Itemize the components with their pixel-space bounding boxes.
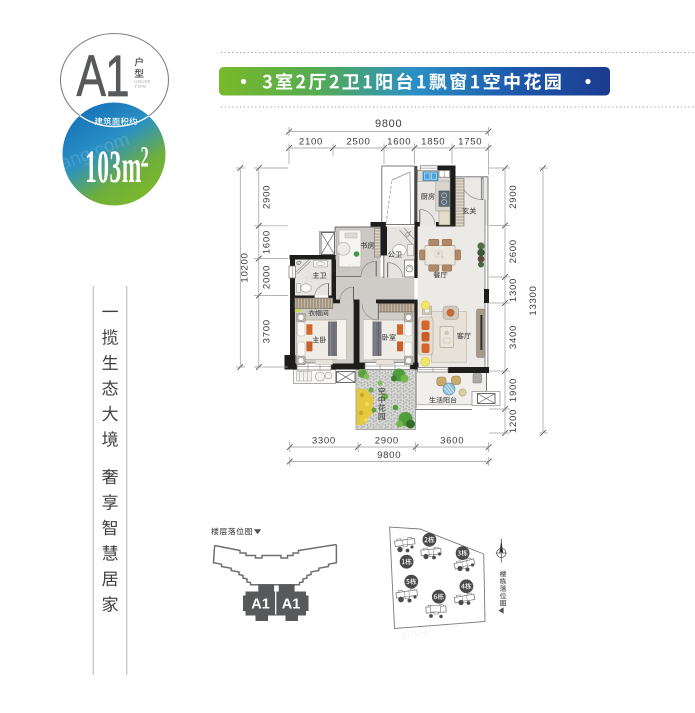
svg-text:13300: 13300 bbox=[528, 285, 539, 315]
svg-text:1300: 1300 bbox=[508, 278, 519, 302]
svg-text:10200: 10200 bbox=[240, 252, 251, 282]
svg-text:103m: 103m bbox=[85, 142, 142, 194]
svg-text:1900: 1900 bbox=[508, 378, 519, 402]
svg-text:2900: 2900 bbox=[508, 185, 519, 209]
svg-text:A1: A1 bbox=[77, 43, 129, 108]
svg-text:2600: 2600 bbox=[508, 239, 519, 263]
svg-text:1600: 1600 bbox=[387, 137, 411, 148]
svg-text:3400: 3400 bbox=[508, 325, 519, 349]
svg-text:2500: 2500 bbox=[346, 137, 370, 148]
svg-text:2900: 2900 bbox=[375, 436, 399, 447]
svg-text:1750: 1750 bbox=[458, 137, 482, 148]
svg-text:1200: 1200 bbox=[508, 409, 519, 433]
svg-text:9800: 9800 bbox=[375, 118, 402, 130]
svg-text:1850: 1850 bbox=[421, 137, 445, 148]
svg-text:TYPE: TYPE bbox=[134, 84, 146, 89]
svg-text:A1: A1 bbox=[282, 597, 301, 613]
svg-text:3700: 3700 bbox=[262, 319, 273, 343]
svg-text:9800: 9800 bbox=[377, 450, 401, 461]
svg-text:2: 2 bbox=[141, 141, 149, 174]
svg-text:1600: 1600 bbox=[262, 230, 273, 254]
svg-text:A1: A1 bbox=[251, 597, 270, 613]
svg-text:2000: 2000 bbox=[262, 265, 273, 289]
svg-text:2100: 2100 bbox=[299, 137, 323, 148]
svg-text:2900: 2900 bbox=[262, 185, 273, 209]
svg-text:3600: 3600 bbox=[440, 436, 464, 447]
svg-text:3300: 3300 bbox=[312, 436, 336, 447]
